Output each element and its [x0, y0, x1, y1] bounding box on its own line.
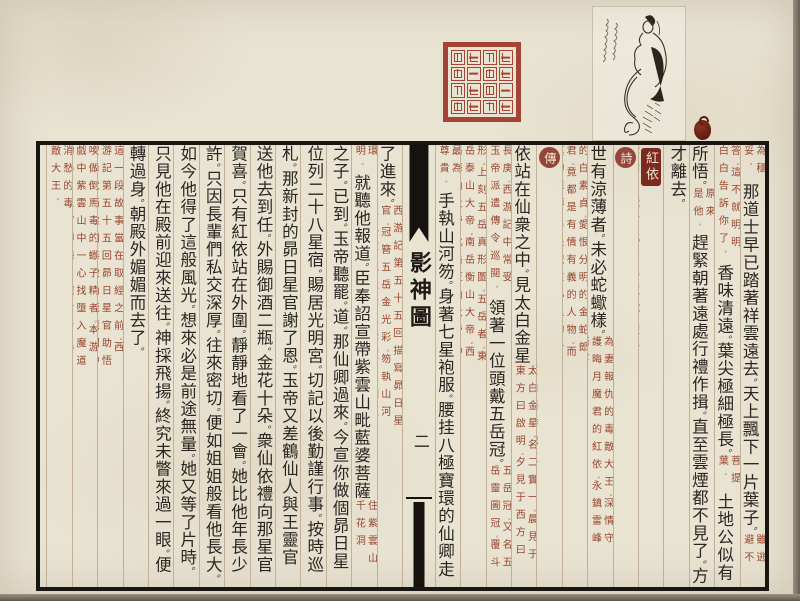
- seal-glyph: [451, 100, 465, 115]
- columns-right-block: 為穩妥。那道士早已踏著祥雲遠去。天上飄下一片葉子。雖逃避不答。這不就明明白白告訴…: [435, 145, 765, 587]
- center-gutter: 影神圖 二: [402, 145, 435, 587]
- main-text: 土地公似有: [715, 493, 734, 582]
- annotation-text: 這一段故事當在取經之前。西游記第五十五回昴日星官助悟空降伏西梁國毒敵山琵琶洞中尾…: [98, 145, 122, 376]
- illustration-svg: [593, 7, 685, 140]
- main-text: 之子。已到。玉帝聽罷。道。那仙卿過來。今宣你做個昴日星官。: [326, 145, 349, 570]
- text-column: 才離去。: [663, 145, 688, 587]
- annotation-text: 太白金星。名二實一。晨見于東方曰啟明。夕見于西方曰: [512, 365, 536, 573]
- annotation-text: 消愁的毒敵大王。: [47, 145, 71, 218]
- seal-glyph: [483, 100, 497, 115]
- text-column: 賀喜。只有紅依站在外圍。靜靜地看了一會。她比他年長少: [224, 145, 249, 587]
- page-edge-bottom: [0, 594, 800, 601]
- entry-title-badge: 紅依: [641, 148, 661, 186]
- main-text: 送他去到任。外賜御酒二瓶。金花十朵。衆仙依禮向那星官: [254, 145, 273, 574]
- main-text: 賀喜。只有紅依站在外圍。靜靜地看了一會。她比他年長少: [229, 145, 248, 574]
- seal-glyph: [451, 83, 465, 98]
- text-column: 環明。就聽他報道。臣奉詔宣帶紫雲山毗藍婆菩薩住紫雲山千花洞: [351, 145, 376, 587]
- seal-glyph: [467, 100, 481, 115]
- main-text: 手執山河笏。身著七星袍服。腰挂八極寶環的仙卿走: [435, 192, 454, 578]
- main-text: 香味清遠。葉尖極細極長。: [715, 264, 734, 455]
- figure-outline: [625, 15, 667, 135]
- annotation-text: 答。這不就明明白白告訴你了。: [715, 145, 739, 264]
- columns-left-block: 了進來。西游記第五十五回描寫昴日星官。冠簪五岳金光彩。笏執山河玉色瓊。袍挂七星雲…: [46, 145, 401, 587]
- seal-glyph: [499, 83, 513, 98]
- annotation-text: 五岳冠。又名五岳靈圖冠。覆斗: [487, 465, 511, 584]
- text-column: 札。那新封的昴日星官謝了恩。玉帝又差鶴仙人與王靈官: [275, 145, 300, 587]
- seal-glyph: [467, 67, 481, 82]
- text-frame: 為穩妥。那道士早已踏著祥雲遠去。天上飄下一片葉子。雖逃避不答。這不就明明白白告訴…: [36, 141, 769, 591]
- annotation-text: 菩提葉。: [715, 455, 739, 493]
- main-text: 所悟。: [689, 145, 708, 188]
- text-column: 為穩妥。那道士早已踏著祥雲遠去。天上飄下一片葉子。雖逃避不: [740, 145, 765, 587]
- page-number: 二: [407, 433, 431, 449]
- main-text: 位列二十八星宿。賜居光明宮。切記以後勤謹行事。按時巡: [305, 145, 324, 574]
- main-text: 如今他得了這般風光。想來必是前途無量。她又等了片時。: [178, 145, 197, 574]
- text-column: 轉過身。朝殿外媚媚而去了。: [123, 145, 148, 587]
- red-bead-icon: [694, 120, 711, 140]
- text-column: 所悟。原來是他。趕緊朝著遠處行禮作揖。直至雲煙都不見了。方: [689, 145, 714, 587]
- gutter-black-bar: [413, 502, 424, 587]
- text-column: 傳玉帝駕座金闕雲宮靈霄寶殿。直用西游記玉帝登場原文。聚集仙卿。紅: [536, 145, 561, 587]
- snake-woman-ink-illustration: [592, 6, 686, 141]
- seal-glyph: [467, 50, 481, 65]
- text-column: 位列二十八星宿。賜居光明宮。切記以後勤謹行事。按時巡: [300, 145, 325, 587]
- text-column: 世有涼薄者。未必蛇蠍樣。為妻報仇的毒敵大王。深情守護晦月魔君的紅依。永鎮雷峰塔下: [587, 145, 612, 587]
- annotation-text: 西游記第五十五回描寫昴日星官。冠簪五岳金光彩。笏執山河玉色瓊。袍挂七星雲霞。腰圍…: [378, 205, 402, 436]
- cursive-inscription-icon: [603, 19, 617, 62]
- annotation-text: 環明。: [352, 145, 376, 174]
- annotation-text: 的白素貞。愛恨分明的金蛇郎君。竟都是有情有義的人物。而真的涼薄。乃是藏在心里的冷…: [563, 145, 587, 376]
- text-column: 答。這不就明明白白告訴你了。香味清遠。葉尖極細極長。菩提葉。土地公似有: [714, 145, 739, 587]
- text-column: 形。上刻五岳真形圖。五岳者。東岳泰山大帝。南岳衡山大帝。西岳華山大帝。北岳恆山大…: [460, 145, 485, 587]
- book-title: 影神圖: [403, 251, 435, 332]
- main-text: 札。那新封的昴日星官謝了恩。玉帝又差鶴仙人與王靈官: [279, 145, 298, 566]
- seal-glyph: [483, 67, 497, 82]
- annotation-text: 最為尊貴。: [436, 145, 460, 192]
- annotation-text: 原來是他。: [690, 188, 714, 235]
- text-column: 詩淚眼思淚眼。斷腸複斷腸。京劇薛仁貴征東。川劇祝莊訪友。流淚眼觀流淚眼。斷腸人送…: [613, 145, 638, 587]
- main-text: 許。只因長輩們私交深厚。往來密切。便如姐姐般看他長大。: [203, 145, 222, 581]
- main-text: 才離去。: [668, 145, 687, 205]
- seal-glyph: [483, 50, 497, 65]
- seal-glyph: [451, 67, 465, 82]
- main-text: 只見他在殿前迎來送往。神採飛揚。終究未瞥來過一眼。便: [152, 145, 171, 574]
- main-text: 就聽他報道。臣奉詔宣帶紫雲山毗藍婆菩薩: [352, 174, 371, 500]
- seal-glyph: [483, 83, 497, 98]
- seal-glyph: [499, 100, 513, 115]
- annotation-text: 雖逃避不: [741, 534, 765, 579]
- annotation-text: 為妻報仇的毒敵大王。深情守護晦月魔君的紅依。永鎮雷峰塔下: [588, 336, 612, 567]
- main-text: 了進來。: [377, 145, 396, 205]
- annotation-text: 形。上刻五岳真形圖。五岳者。東岳泰山大帝。南岳衡山大帝。西岳華山大帝。北岳恆山大…: [461, 145, 485, 376]
- main-text: 轉過身。朝殿外媚媚而去了。: [127, 145, 146, 354]
- text-column: 之子。已到。玉帝聽罷。道。那仙卿過來。今宣你做個昴日星官。: [326, 145, 351, 587]
- text-column: 只見他在殿前迎來送往。神採飛揚。終究未瞥來過一眼。便: [148, 145, 173, 587]
- text-column: 消愁的毒敵大王。: [46, 145, 71, 587]
- main-text: 依站在仙衆之中。見太白金星: [512, 145, 531, 365]
- annotation-text: 住紫雲山千花洞: [352, 500, 376, 571]
- seal-glyph: [467, 83, 481, 98]
- seal-glyph: [451, 50, 465, 65]
- gutter-divider: [406, 497, 432, 499]
- text-column: 最為尊貴。手執山河笏。身著七星袍服。腰挂八極寶環的仙卿走: [435, 145, 460, 587]
- text-column: 了進來。西游記第五十五回描寫昴日星官。冠簪五岳金光彩。笏執山河玉色瓊。袍挂七星雲…: [377, 145, 402, 587]
- section-marker: 傳: [539, 147, 560, 168]
- text-column: 許。只因長輩們私交深厚。往來密切。便如姐姐般看他長大。: [199, 145, 224, 587]
- main-text: 那道士早已踏著祥雲遠去。天上飄下一片葉子。: [740, 183, 759, 534]
- main-text: 趕緊朝著遠處行禮作揖。直至雲煙都不見了。方: [689, 234, 708, 585]
- main-text: 領著一位頭戴五岳冠。: [486, 299, 505, 465]
- text-column: 如今他得了這般風光。想來必是前途無量。她又等了片時。: [173, 145, 198, 587]
- seal-glyph: [499, 67, 513, 82]
- text-column: 這一段故事當在取經之前。西游記第五十五回昴日星官助悟空降伏西梁國毒敵山琵琶洞中尾…: [97, 145, 122, 587]
- annotation-text: 為穩妥。: [741, 145, 765, 183]
- text-column: 紅依紫雲山麓下化身為紅蛇。假扮祭悼亡夫未亡人。引導天命人前去解脫墮入魔道的晦月魔…: [638, 145, 663, 587]
- page-edge-right: [793, 0, 800, 601]
- seal-stamp-icon: [443, 42, 521, 122]
- annotation-text: 長庚。西游記中常受玉帝派遣傳令巡閱。: [487, 145, 511, 299]
- text-column: 的白素貞。愛恨分明的金蛇郎君。竟都是有情有義的人物。而真的涼薄。乃是藏在心里的冷…: [562, 145, 587, 587]
- seal-glyph: [499, 50, 513, 65]
- text-column: 長庚。西游記中常受玉帝派遣傳令巡閱。領著一位頭戴五岳冠。五岳冠。又名五岳靈圖冠。…: [486, 145, 511, 587]
- annotation-text: 喚做倒馬毒的蠍子精者。本游戲中紫雲山中一心找墮入魔道的昴日星官即晦月魔君者。尋仇…: [73, 145, 97, 376]
- section-marker: 詩: [615, 147, 636, 168]
- ribbon-fishtail-icon: [409, 145, 428, 242]
- text-column: 送他去到任。外賜御酒二瓶。金花十朵。衆仙依禮向那星官: [250, 145, 275, 587]
- text-column: 依站在仙衆之中。見太白金星太白金星。名二實一。晨見于東方曰啟明。夕見于西方曰: [511, 145, 536, 587]
- text-column: 喚做倒馬毒的蠍子精者。本游戲中紫雲山中一心找墮入魔道的昴日星官即晦月魔君者。尋仇…: [72, 145, 97, 587]
- main-text: 世有涼薄者。未必蛇蠍樣。: [588, 145, 607, 336]
